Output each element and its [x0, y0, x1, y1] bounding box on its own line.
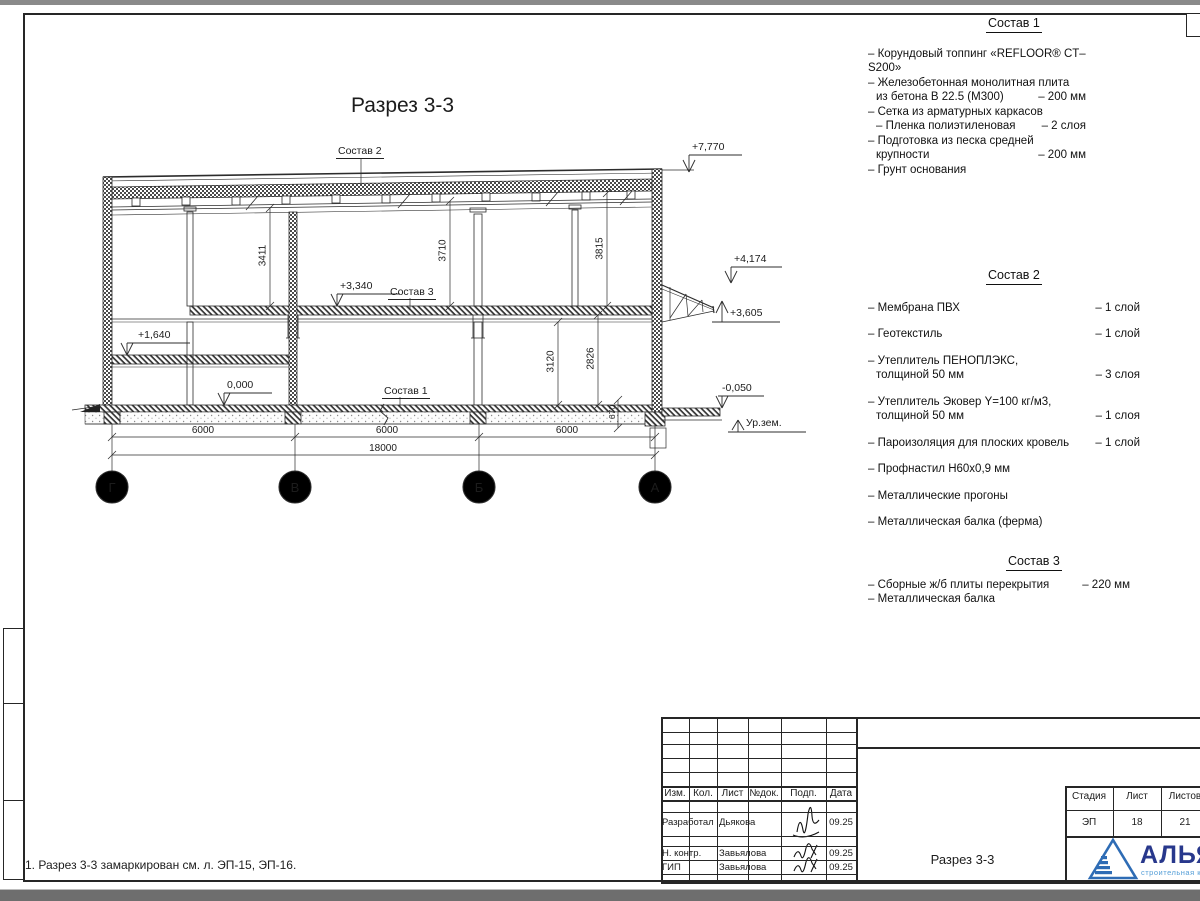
spec-item: – Пароизоляция для плоских кровель: [868, 436, 1069, 451]
logo-tagline: строительная компания: [1141, 868, 1200, 877]
spec-item: – Утеплитель Эковер Y=100 кг/м3,: [868, 395, 1051, 410]
spec-item: – Мембрана ПВХ: [868, 301, 960, 316]
spec-item: крупности: [876, 148, 929, 163]
elevation-canopy-top: +4,174: [734, 253, 766, 265]
elevation-outside: -0,050: [722, 382, 752, 394]
tb-date-3: 09.25: [827, 862, 855, 873]
spec-item: толщиной 50 мм: [876, 409, 964, 424]
tb-col-podp: Подп.: [781, 788, 826, 799]
callout-sostav3: Состав 3: [388, 286, 436, 300]
dim-3815: 3815: [595, 227, 606, 271]
spec-sostav-3: Состав 3 – Сборные ж/б плиты перекрытия–…: [868, 554, 1130, 607]
dim-6000-2: 6000: [367, 425, 407, 436]
spec-item: – Пленка полиэтиленовая: [876, 119, 1015, 134]
tb-name-zavyalova-2: Завьялова: [719, 862, 766, 873]
callout-sostav2: Состав 2: [336, 145, 384, 159]
tb-sheets-header: Листов: [1161, 791, 1200, 802]
tb-stage-header: Стадия: [1065, 791, 1113, 802]
logo-name: АЛЬЯНС: [1140, 841, 1200, 870]
tb-role-nkontr: Н. контр.: [662, 848, 701, 859]
tb-date-1: 09.25: [827, 817, 855, 828]
logo-pyramid-icon: [1078, 836, 1140, 880]
elevation-roof: +7,770: [692, 141, 724, 153]
tb-role-razrabotal: Разработал: [662, 817, 714, 828]
tb-col-izm: Изм.: [661, 788, 689, 799]
spec-item: – Профнастил Н60х0,9 мм: [868, 462, 1010, 477]
drawing-title: Разрез 3-3: [300, 94, 505, 118]
sheet-note: 1. Разрез 3-3 замаркирован см. л. ЭП-15,…: [25, 858, 296, 872]
tb-doc-title: Разрез 3-3: [880, 852, 1045, 867]
tb-sheet-header: Лист: [1113, 791, 1161, 802]
spec-item: – Утеплитель ПЕНОПЛЭКС,: [868, 354, 1018, 369]
ground-level-label: Ур.зем.: [746, 417, 782, 429]
dim-2826: 2826: [586, 337, 597, 381]
dim-670: 670: [607, 390, 617, 434]
dim-3411: 3411: [258, 234, 269, 278]
spec-item: – Геотекстиль: [868, 327, 942, 342]
spec-item: – Сборные ж/б плиты перекрытия: [868, 578, 1049, 593]
dim-18000: 18000: [360, 443, 406, 454]
dim-6000-3: 6000: [547, 425, 587, 436]
spec-item: – Подготовка из песка средней: [868, 134, 1034, 149]
spec-item: – Железобетонная монолитная плита: [868, 76, 1069, 91]
tb-sheet-value: 18: [1113, 817, 1161, 828]
spec-item: из бетона В 22.5 (М300): [876, 90, 1004, 105]
callout-sostav1: Состав 1: [382, 385, 430, 399]
dim-3120: 3120: [546, 340, 557, 384]
tb-role-gip: ГИП: [662, 862, 681, 873]
tb-col-ndok: №док.: [746, 788, 782, 799]
tb-name-dyakova: Дьякова: [719, 817, 755, 828]
tb-col-kol: Кол.: [689, 788, 717, 799]
tb-sheets-value: 21: [1161, 817, 1200, 828]
tb-stage-value: ЭП: [1065, 817, 1113, 828]
spec-item: – Корундовый топпинг «REFLOOR® CT–S200»: [868, 47, 1086, 76]
elevation-slab: +3,340: [340, 280, 372, 292]
spec-item: – Грунт основания: [868, 163, 966, 178]
spec1-title: Состав 1: [986, 16, 1042, 33]
company-logo: АЛЬЯНС строительная компания: [1078, 836, 1200, 880]
spec2-title: Состав 2: [986, 268, 1042, 285]
spec-item: – Металлические прогоны: [868, 489, 1008, 504]
tb-col-list: Лист: [717, 788, 748, 799]
axis-g: Г: [102, 480, 122, 495]
spec-sostav-1: Состав 1 – Корундовый топпинг «REFLOOR® …: [868, 16, 1086, 177]
elevation-canopy-bottom: +3,605: [730, 307, 762, 319]
spec-item: – Металлическая балка: [868, 592, 995, 607]
tb-name-zavyalova-1: Завьялова: [719, 848, 766, 859]
axis-v: В: [285, 480, 305, 495]
spec-item: – Металлическая балка (ферма): [868, 515, 1042, 530]
spec-item: толщиной 50 мм: [876, 368, 964, 383]
drawing-sheet-viewer: { "chrome":{"top_band":"#8a8a8a","bottom…: [0, 0, 1200, 900]
dim-6000-1: 6000: [183, 425, 223, 436]
spec-item: – Сетка из арматурных каркасов: [868, 105, 1043, 120]
elevation-mezzanine: +1,640: [138, 329, 170, 341]
spec-sostav-2: Состав 2 – Мембрана ПВХ– 1 слой – Геотек…: [868, 268, 1140, 530]
tb-date-2: 09.25: [827, 848, 855, 859]
spec3-title: Состав 3: [1006, 554, 1062, 571]
tb-col-data: Дата: [826, 788, 856, 799]
dim-3710: 3710: [438, 229, 449, 273]
elevation-zero: 0,000: [227, 379, 253, 391]
axis-a: А: [645, 480, 665, 495]
axis-b: Б: [469, 480, 489, 495]
